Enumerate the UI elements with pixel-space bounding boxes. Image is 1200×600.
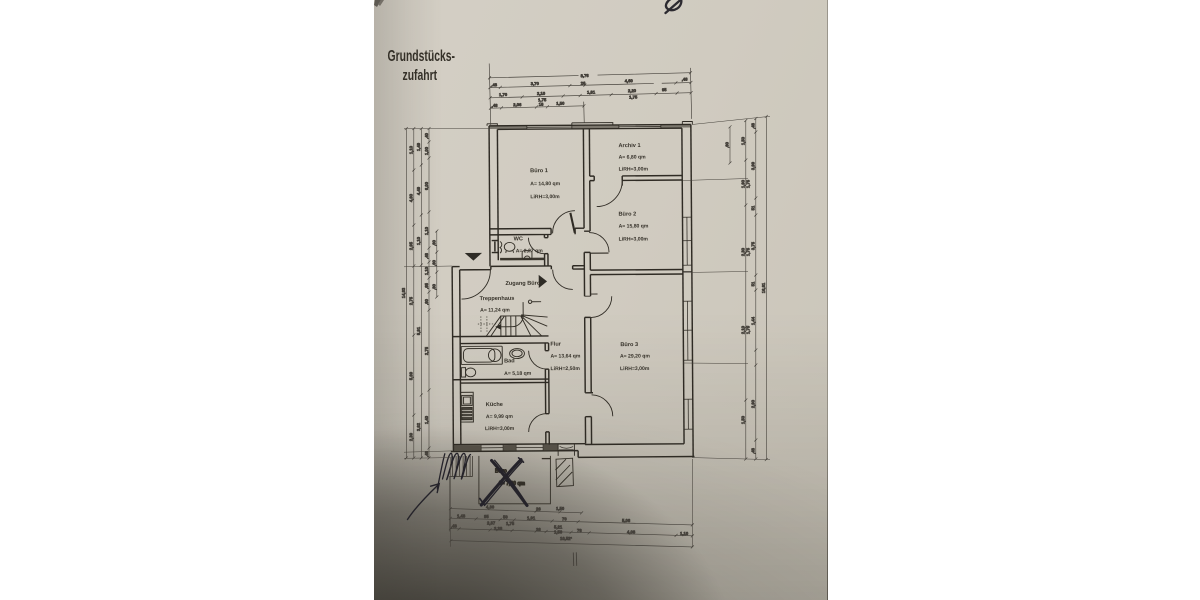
svg-text:A= 2,27 qm: A= 2,27 qm xyxy=(516,248,544,254)
svg-text:1,50: 1,50 xyxy=(556,506,565,511)
svg-text:1,50: 1,50 xyxy=(741,415,746,424)
svg-text:51: 51 xyxy=(751,281,756,286)
svg-text:1,50: 1,50 xyxy=(556,101,565,106)
svg-text:1,48: 1,48 xyxy=(457,513,466,518)
svg-text:zufahrt: zufahrt xyxy=(403,66,438,83)
svg-text:1,75: 1,75 xyxy=(745,247,750,256)
svg-text:1,10: 1,10 xyxy=(409,145,414,154)
svg-text:Bad: Bad xyxy=(504,358,515,364)
svg-text:A= 5,18 qm: A= 5,18 qm xyxy=(504,371,532,377)
svg-text:1,40: 1,40 xyxy=(424,415,429,424)
svg-text:Küche: Küche xyxy=(486,402,503,408)
svg-text:LiRH=3,00m: LiRH=3,00m xyxy=(620,366,650,372)
svg-text:A= 29,20 qm: A= 29,20 qm xyxy=(620,353,650,359)
svg-text:1,75: 1,75 xyxy=(745,179,750,188)
svg-text:95: 95 xyxy=(484,514,489,519)
svg-text:A= 6,80 qm: A= 6,80 qm xyxy=(619,154,647,160)
svg-text:4,30: 4,30 xyxy=(486,504,495,509)
svg-text:A= 13,64 qm: A= 13,64 qm xyxy=(550,353,580,359)
svg-text:LiRH=3,00m: LiRH=3,00m xyxy=(530,194,560,200)
svg-text:1,81: 1,81 xyxy=(587,90,596,95)
svg-text:2,90: 2,90 xyxy=(751,399,756,408)
svg-text:,48: ,48 xyxy=(424,450,429,456)
svg-text:1,91: 1,91 xyxy=(527,515,536,520)
svg-text:,48: ,48 xyxy=(424,252,429,258)
svg-text:26: 26 xyxy=(581,81,586,86)
svg-text:Flur: Flur xyxy=(550,342,561,348)
svg-text:,48: ,48 xyxy=(492,103,499,108)
svg-text:1,50: 1,50 xyxy=(554,530,563,535)
svg-text:1,00: 1,00 xyxy=(424,146,429,155)
svg-text:2,75: 2,75 xyxy=(424,346,429,355)
svg-text:95: 95 xyxy=(662,87,667,92)
svg-text:6,00: 6,00 xyxy=(424,181,429,190)
svg-text:A= 11,24 qm: A= 11,24 qm xyxy=(480,307,510,313)
svg-text:1,75: 1,75 xyxy=(745,325,750,334)
svg-text:,48: ,48 xyxy=(682,77,689,82)
svg-text:14,63: 14,63 xyxy=(401,287,406,298)
svg-text:70: 70 xyxy=(562,516,567,521)
svg-text:3,38: 3,38 xyxy=(494,526,503,531)
svg-text:2,10: 2,10 xyxy=(537,91,546,96)
svg-text:1,10: 1,10 xyxy=(680,531,689,536)
svg-text:Zugang Büro: Zugang Büro xyxy=(505,281,540,287)
svg-text:3,99: 3,99 xyxy=(751,161,756,170)
svg-text:,48: ,48 xyxy=(751,447,756,453)
svg-text:2,75: 2,75 xyxy=(409,296,414,305)
svg-text:4,60: 4,60 xyxy=(625,78,634,83)
svg-text:LiRH=3,00m: LiRH=3,00m xyxy=(619,166,649,172)
svg-text:3,70: 3,70 xyxy=(531,81,540,86)
svg-text:,65: ,65 xyxy=(424,282,429,288)
svg-text:Büro 3: Büro 3 xyxy=(620,342,638,348)
svg-text:16: 16 xyxy=(539,102,544,107)
svg-text:,60: ,60 xyxy=(424,298,429,304)
svg-text:LiRH=2,50m: LiRH=2,50m xyxy=(551,366,581,372)
svg-text:1,75: 1,75 xyxy=(506,521,515,526)
svg-text:Archiv 1: Archiv 1 xyxy=(618,143,640,149)
svg-text:Treppenhaus: Treppenhaus xyxy=(480,296,515,302)
svg-text:50: 50 xyxy=(503,515,508,520)
svg-text:1,50: 1,50 xyxy=(741,136,746,145)
svg-text:4,08: 4,08 xyxy=(627,530,636,535)
svg-text:1,10: 1,10 xyxy=(424,266,429,275)
svg-text:3,62: 3,62 xyxy=(416,422,421,431)
svg-text:2,95: 2,95 xyxy=(409,241,414,250)
svg-text:4,60: 4,60 xyxy=(409,193,414,202)
svg-text:5,69: 5,69 xyxy=(409,371,414,380)
svg-text:1,75: 1,75 xyxy=(629,94,638,99)
svg-text:,60: ,60 xyxy=(725,141,730,147)
svg-text:LiRH=3,00m: LiRH=3,00m xyxy=(485,426,515,432)
svg-text:26: 26 xyxy=(536,507,541,512)
svg-text:A= 9,99 qm: A= 9,99 qm xyxy=(486,414,514,420)
svg-text:,60: ,60 xyxy=(432,239,437,245)
svg-text:5,91: 5,91 xyxy=(416,326,421,335)
svg-text:,48: ,48 xyxy=(451,524,457,529)
svg-text:2,20: 2,20 xyxy=(628,88,637,93)
svg-text:4,49: 4,49 xyxy=(416,186,421,195)
svg-text:1,49: 1,49 xyxy=(416,142,421,151)
svg-text:5,06: 5,06 xyxy=(622,518,631,523)
svg-text:1,44: 1,44 xyxy=(751,316,756,325)
svg-text:,48: ,48 xyxy=(751,122,756,128)
svg-text:Büro 1: Büro 1 xyxy=(530,168,548,174)
svg-text:1,10: 1,10 xyxy=(416,236,421,245)
svg-text:LiRH=3,00m: LiRH=3,00m xyxy=(619,236,649,242)
svg-text:8,76: 8,76 xyxy=(580,73,589,78)
svg-text:1,10: 1,10 xyxy=(424,226,429,235)
svg-text:Grundstücks-: Grundstücks- xyxy=(388,47,455,65)
svg-text:WC: WC xyxy=(514,236,523,242)
svg-text:51: 51 xyxy=(751,205,756,210)
svg-text:Büro 2: Büro 2 xyxy=(618,212,636,218)
svg-text:,60: ,60 xyxy=(432,259,437,265)
svg-text:26: 26 xyxy=(536,527,541,532)
svg-text:3,75: 3,75 xyxy=(751,241,756,250)
svg-text:A= 15,80 qm: A= 15,80 qm xyxy=(619,223,649,229)
svg-text:2,06: 2,06 xyxy=(513,102,522,107)
svg-text:10,52²: 10,52² xyxy=(560,536,572,541)
svg-text:76: 76 xyxy=(577,528,582,533)
svg-text:,40: ,40 xyxy=(424,132,429,138)
svg-text:,80: ,80 xyxy=(432,283,437,289)
svg-text:A= 14,80 qm: A= 14,80 qm xyxy=(530,181,560,187)
svg-text:2,39: 2,39 xyxy=(409,432,414,441)
svg-text:16,61: 16,61 xyxy=(761,282,766,293)
svg-text:1,70: 1,70 xyxy=(499,92,508,97)
svg-text:2,37: 2,37 xyxy=(487,520,496,525)
svg-text:,48: ,48 xyxy=(491,82,498,87)
